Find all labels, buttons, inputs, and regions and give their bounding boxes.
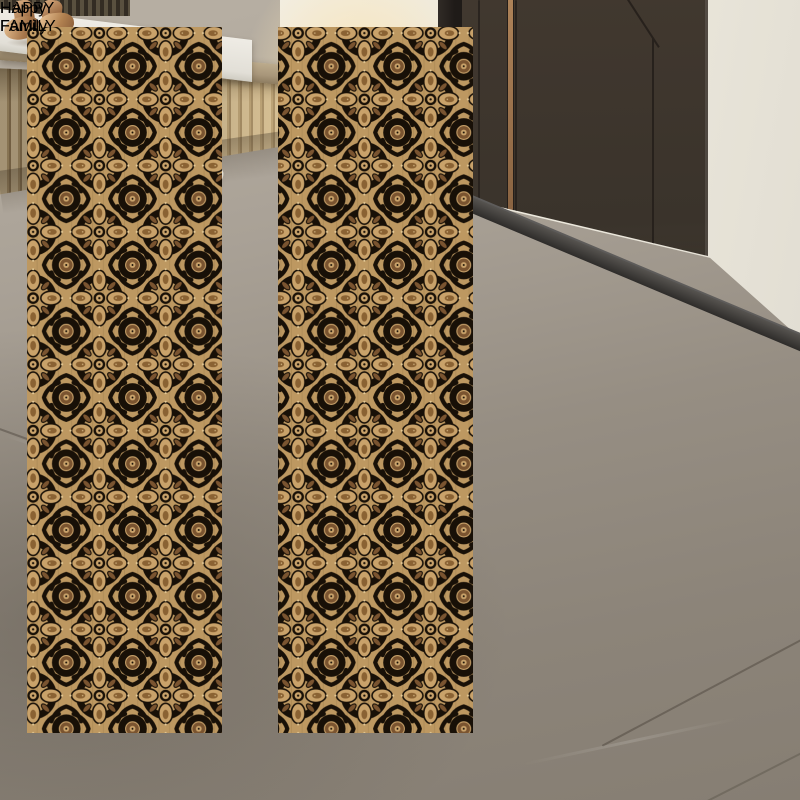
rug-field-right (278, 27, 473, 733)
rug-stripe-text-script: Happy Family (0, 0, 47, 36)
entryway-scene: HAPPY FAMILY Happy Family (0, 0, 800, 800)
